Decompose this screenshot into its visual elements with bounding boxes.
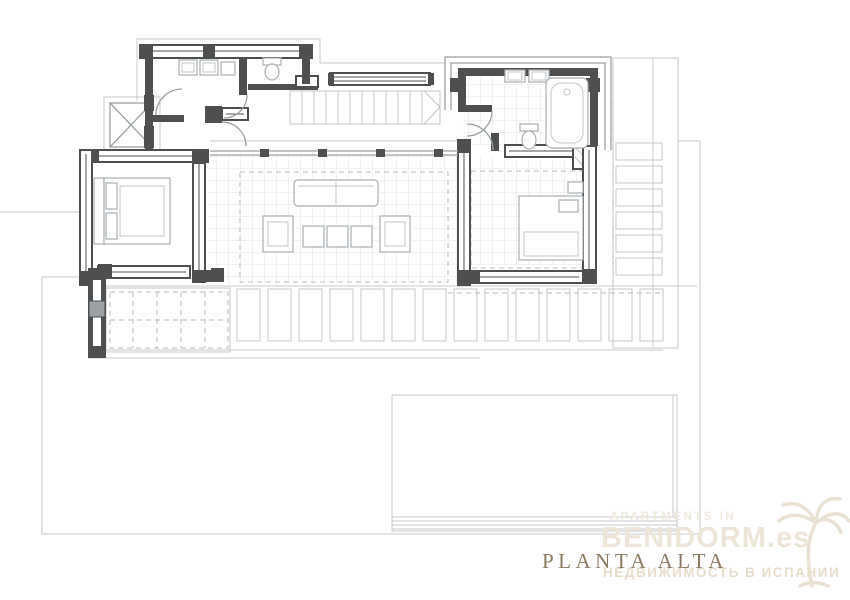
swimming-pool: [392, 395, 677, 531]
bed-left: [94, 178, 170, 244]
floor-plan-drawing: [0, 0, 850, 600]
stair-window-band: [328, 73, 434, 85]
bathroom-left-walls: [140, 45, 318, 153]
pergola-louvers-right: [616, 143, 662, 275]
palm-tree-icon: [779, 499, 849, 586]
floor-plan-page: APARTMENTS IN BENIDORM.es НЕДВИЖИМОСТЬ В…: [0, 0, 850, 600]
pergola-louvers-bottom: [237, 289, 663, 341]
bathroom-left-fixtures: [179, 58, 281, 80]
staircase: [290, 91, 440, 124]
plan-title: PLANTA ALTA: [542, 549, 728, 574]
